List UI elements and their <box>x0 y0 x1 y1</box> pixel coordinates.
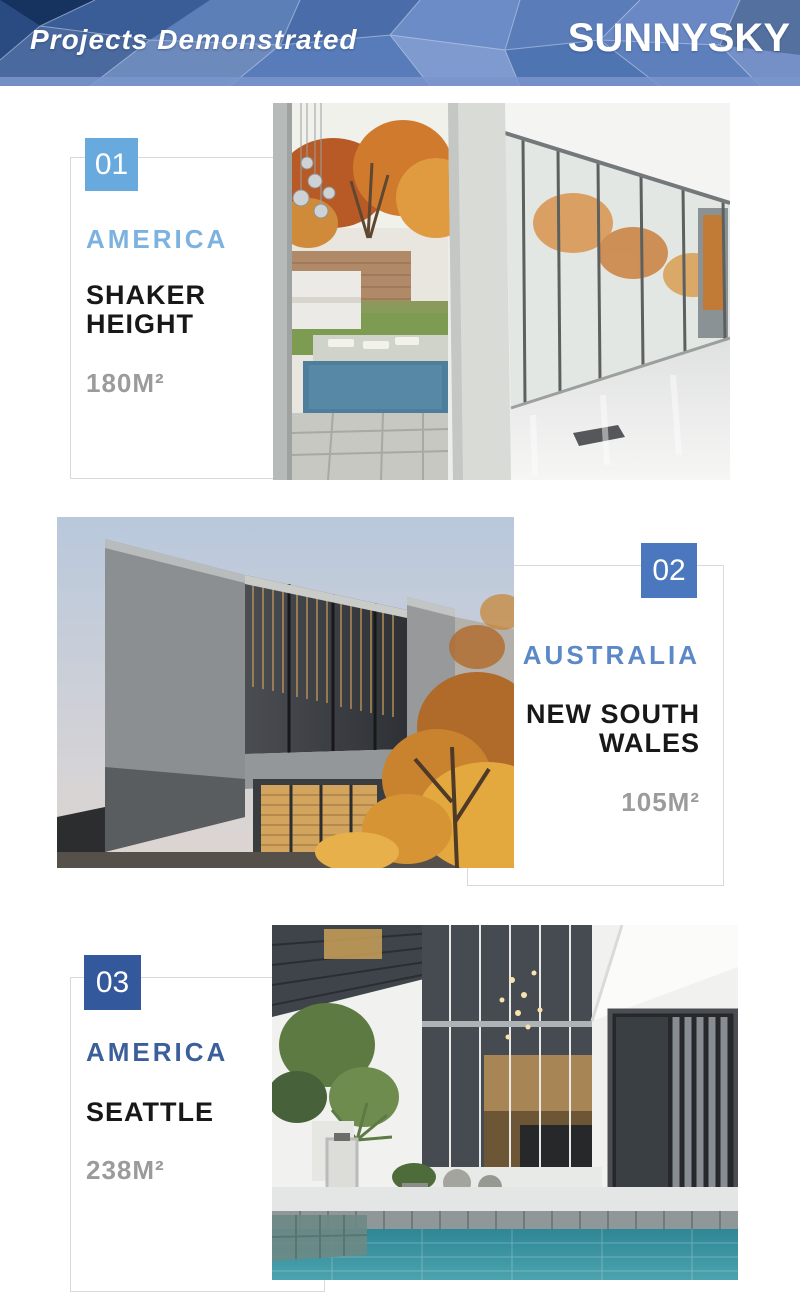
project-photo-3 <box>272 925 738 1280</box>
page: Projects Demonstrated SUNNYSKY <box>0 0 800 1300</box>
project-number-badge-1: 01 <box>85 138 138 191</box>
project-photo-1 <box>273 103 730 480</box>
project-photo-2 <box>57 517 514 868</box>
project-number-badge-2: 02 <box>641 543 697 598</box>
project-country-3: AMERICA <box>86 1037 228 1068</box>
project-location-2: NEW SOUTH WALES <box>460 700 700 758</box>
page-title: Projects Demonstrated <box>30 24 358 56</box>
project-area-3: 238M² <box>86 1155 165 1186</box>
project-country-2: AUSTRALIA <box>460 640 700 671</box>
courtyard-pool-house-photo <box>272 925 738 1280</box>
project-country-1: AMERICA <box>86 224 228 255</box>
project-location-3: SEATTLE <box>86 1098 306 1127</box>
modern-house-dusk-photo <box>57 517 514 868</box>
brand-logo: SUNNYSKY <box>568 16 790 61</box>
project-area-2: 105M² <box>460 787 700 818</box>
project-number-badge-3: 03 <box>84 955 141 1010</box>
project-location-1: SHAKER HEIGHT <box>86 281 276 339</box>
page-header: Projects Demonstrated SUNNYSKY <box>0 0 800 86</box>
glass-house-autumn-corridor-photo <box>273 103 730 480</box>
project-area-1: 180M² <box>86 368 165 399</box>
